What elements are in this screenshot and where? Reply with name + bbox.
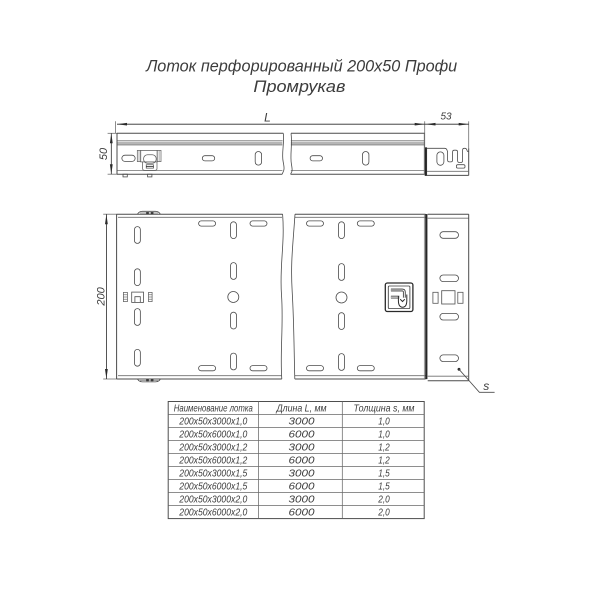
svg-text:Наименование лотка: Наименование лотка xyxy=(174,403,253,414)
svg-text:200х50х3000х1,0: 200х50х3000х1,0 xyxy=(178,416,247,427)
svg-text:Толщина s, мм: Толщина s, мм xyxy=(354,403,415,414)
svg-text:Промрукав: Промрукав xyxy=(253,77,345,96)
svg-text:1,0: 1,0 xyxy=(378,416,390,427)
svg-text:3000: 3000 xyxy=(289,494,316,505)
svg-text:3000: 3000 xyxy=(289,416,316,427)
svg-text:200х50х3000х1,5: 200х50х3000х1,5 xyxy=(178,468,247,479)
svg-text:6000: 6000 xyxy=(289,507,316,518)
svg-text:200х50х3000х1,2: 200х50х3000х1,2 xyxy=(178,442,247,453)
svg-text:200х50х6000х2,0: 200х50х6000х2,0 xyxy=(178,507,247,518)
svg-text:1,5: 1,5 xyxy=(378,468,390,479)
svg-text:200х50х6000х1,2: 200х50х6000х1,2 xyxy=(178,455,247,466)
svg-text:2,0: 2,0 xyxy=(377,494,390,505)
svg-text:53: 53 xyxy=(440,111,452,122)
svg-text:200х50х6000х1,0: 200х50х6000х1,0 xyxy=(178,429,247,440)
svg-text:Лоток перфорированный 200х50 П: Лоток перфорированный 200х50 Профи xyxy=(145,57,457,76)
svg-text:3000: 3000 xyxy=(289,442,316,453)
svg-text:1,2: 1,2 xyxy=(378,442,390,453)
svg-text:2,0: 2,0 xyxy=(377,507,390,518)
svg-text:6000: 6000 xyxy=(289,481,316,492)
svg-text:1,5: 1,5 xyxy=(378,481,390,492)
svg-text:L: L xyxy=(264,110,271,124)
svg-text:1,2: 1,2 xyxy=(378,455,390,466)
svg-text:200х50х3000х2,0: 200х50х3000х2,0 xyxy=(178,494,247,505)
svg-text:s: s xyxy=(483,379,489,393)
svg-text:200х50х6000х1,5: 200х50х6000х1,5 xyxy=(178,481,247,492)
svg-text:50: 50 xyxy=(98,147,110,160)
svg-text:Длина L, мм: Длина L, мм xyxy=(276,403,327,414)
svg-text:1,0: 1,0 xyxy=(378,429,390,440)
svg-text:3000: 3000 xyxy=(289,468,316,479)
svg-text:6000: 6000 xyxy=(289,429,316,440)
svg-text:200: 200 xyxy=(96,286,108,306)
svg-text:6000: 6000 xyxy=(289,455,316,466)
